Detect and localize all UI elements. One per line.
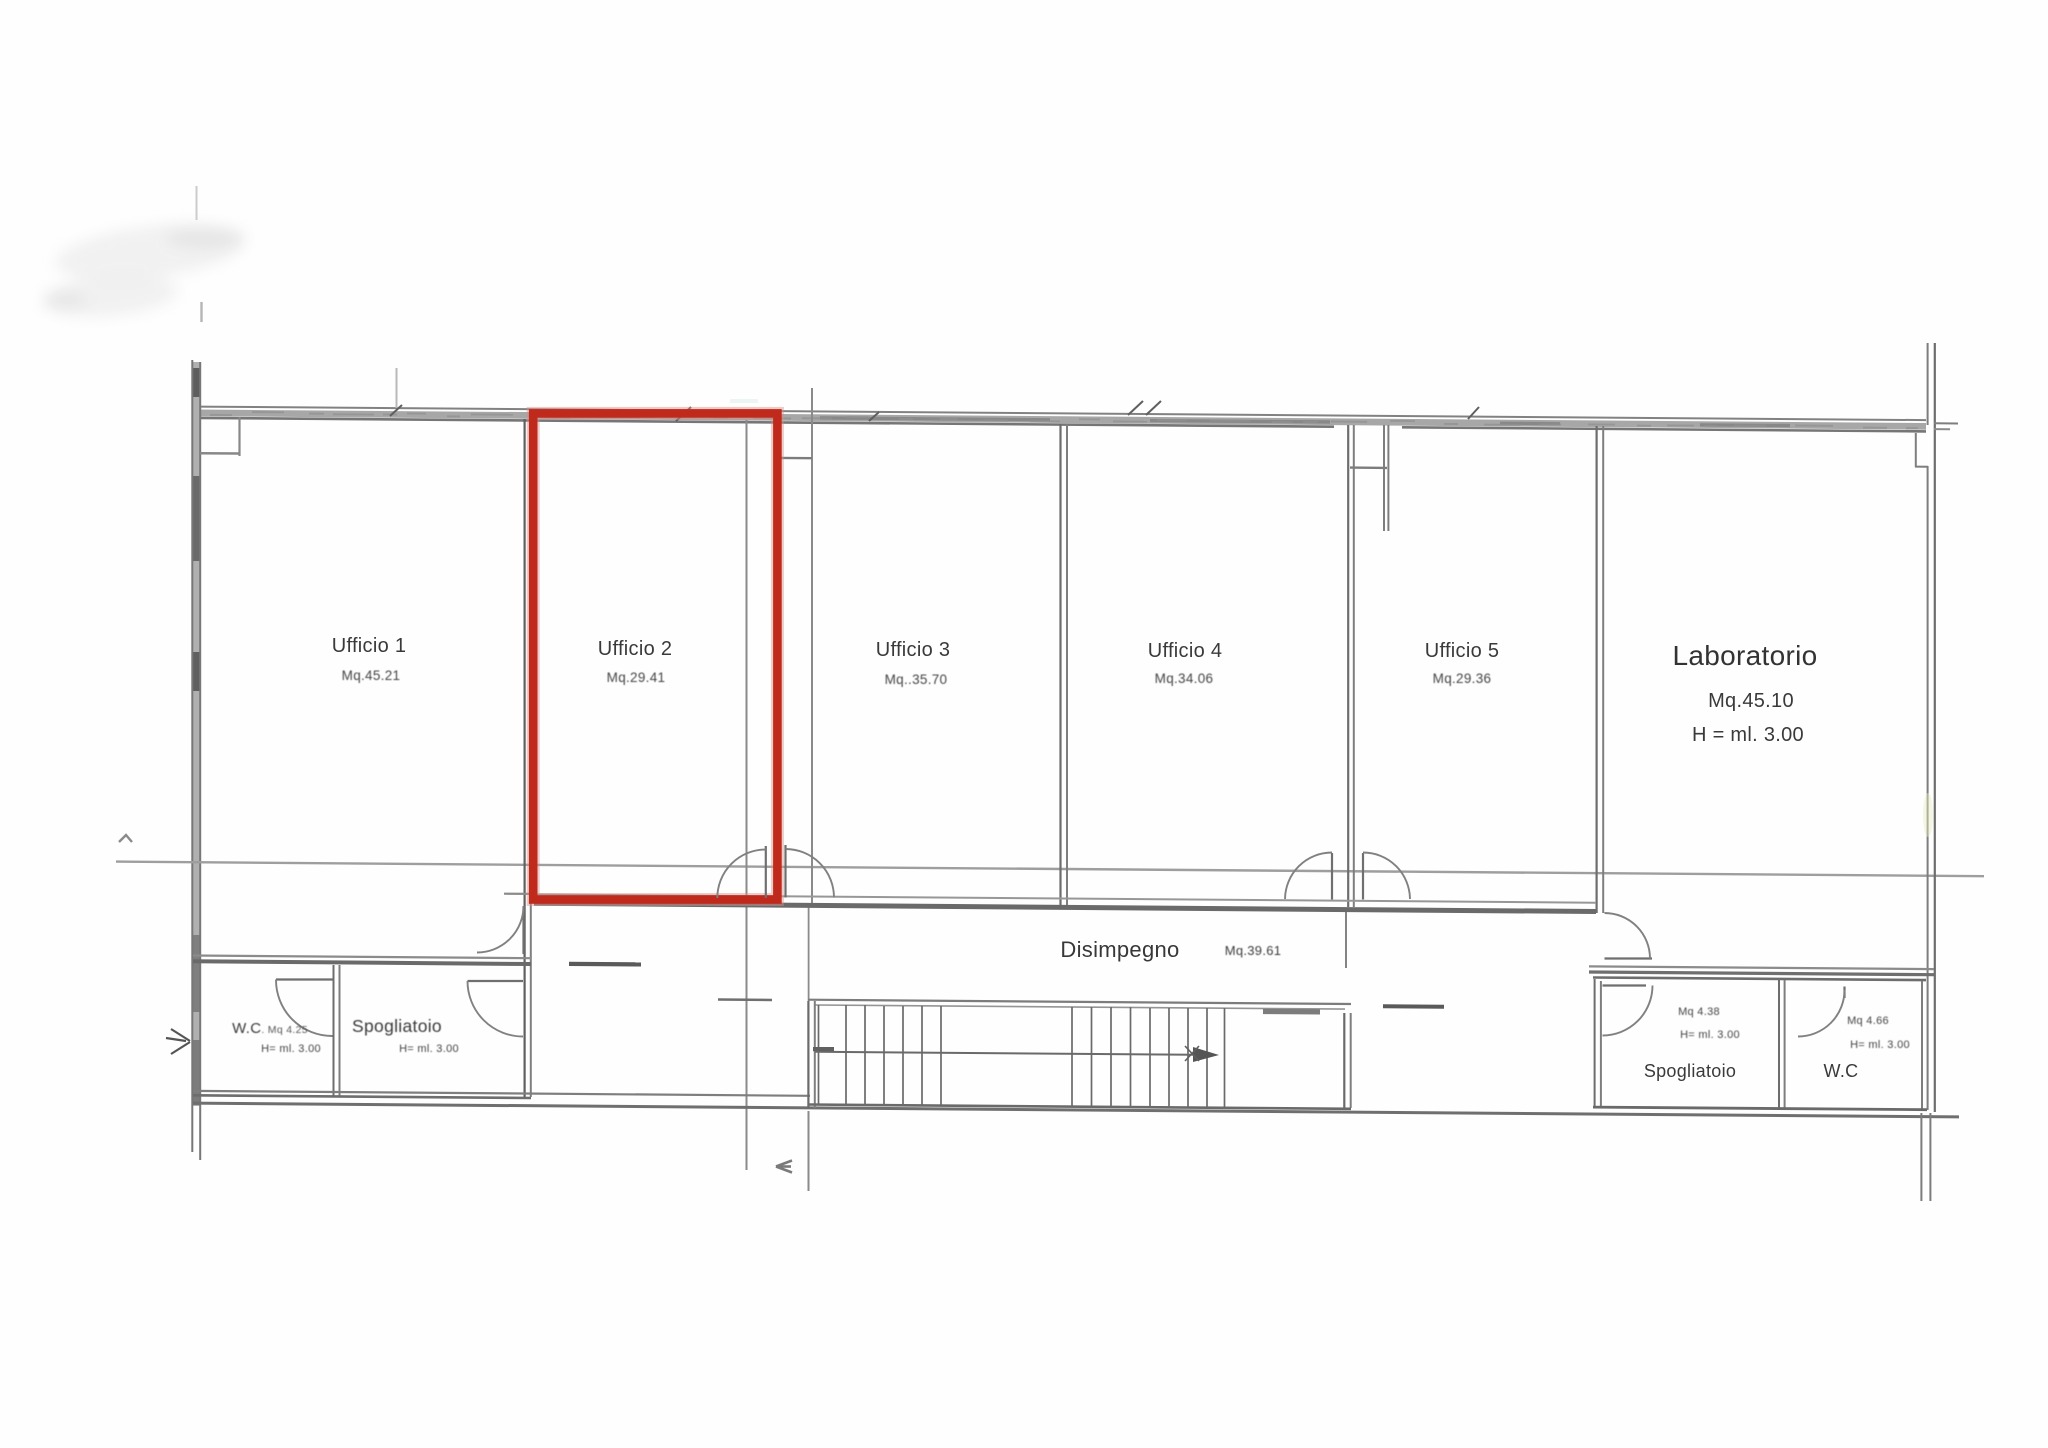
svg-text:Mq.45.21: Mq.45.21 [342,668,401,683]
svg-text:Ufficio 3: Ufficio 3 [876,639,951,661]
svg-text:Mq.39.61: Mq.39.61 [1225,943,1282,958]
svg-text:Ufficio 5: Ufficio 5 [1425,640,1500,662]
svg-text:Ufficio 2: Ufficio 2 [598,638,673,660]
svg-text:Mq..35.70: Mq..35.70 [885,672,948,687]
svg-text:Mq.34.06: Mq.34.06 [1155,671,1214,686]
svg-text:Mq.45.10: Mq.45.10 [1708,690,1794,712]
svg-text:Ufficio 4: Ufficio 4 [1148,640,1223,662]
svg-text:Ufficio 1: Ufficio 1 [332,635,407,657]
svg-text:H= ml. 3.00: H= ml. 3.00 [1850,1039,1910,1051]
svg-text:H= ml. 3.00: H= ml. 3.00 [1680,1029,1740,1041]
svg-text:Disimpegno: Disimpegno [1060,937,1179,962]
svg-text:Spogliatoio: Spogliatoio [1644,1061,1736,1081]
svg-text:Laboratorio: Laboratorio [1673,640,1818,671]
svg-text:Mq.29.36: Mq.29.36 [1433,671,1492,686]
svg-text:Mq 4.66: Mq 4.66 [1847,1015,1889,1027]
svg-text:Spogliatoio: Spogliatoio [352,1016,442,1036]
svg-text:Mq.29.41: Mq.29.41 [607,670,666,685]
svg-text:W.C: W.C [1824,1061,1859,1081]
svg-text:H = ml. 3.00: H = ml. 3.00 [1692,724,1804,746]
svg-text:H= ml. 3.00: H= ml. 3.00 [399,1043,459,1055]
svg-text:Mq 4.38: Mq 4.38 [1678,1006,1720,1018]
svg-text:H= ml. 3.00: H= ml. 3.00 [261,1043,321,1055]
